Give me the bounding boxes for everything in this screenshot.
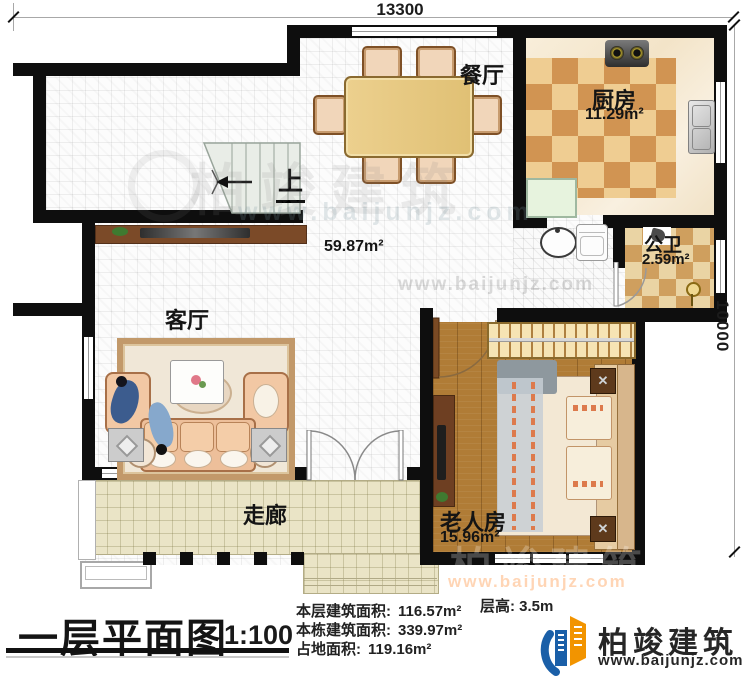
stat-value: 339.97m² (398, 622, 462, 639)
washing-machine (576, 224, 608, 261)
room-area-bedroom: 15.96m² (440, 529, 500, 547)
floor-height-label: 层高: (480, 598, 515, 615)
stat-value: 119.16m² (368, 641, 431, 658)
stove (605, 40, 649, 67)
stat-row: 本层建筑面积:116.57m² (296, 602, 462, 621)
bedroom-window-divider (530, 552, 533, 565)
porch-pillar (291, 552, 304, 565)
bedroom-tv (437, 425, 446, 480)
pillow (566, 396, 612, 440)
hall-area: 59.87m² (324, 238, 384, 256)
room-label-living: 客厅 (165, 303, 209, 335)
dining-window (352, 25, 497, 38)
outside-top-left (0, 0, 300, 63)
wall-living-left-upper (82, 210, 95, 337)
porch-pillar (254, 552, 267, 565)
sideboard-tv (140, 228, 250, 238)
floor-plan: 上 (0, 0, 750, 688)
porch-step-line (303, 578, 437, 579)
floor-drain (686, 282, 701, 297)
room-area-bath: 2.59m² (642, 251, 690, 268)
title-scale: 1:100 (224, 620, 293, 651)
area-stats: 本层建筑面积:116.57m² 本栋建筑面积:339.97m² 占地面积:119… (296, 602, 462, 659)
bedroom-window-divider (566, 552, 569, 565)
brand-website: www.baijunjz.com (598, 652, 743, 669)
bed-rail (616, 364, 635, 550)
wall-living-bottom-left (82, 467, 102, 480)
bed-post: ✕ (590, 516, 616, 542)
wash-basin (540, 227, 577, 258)
person-head (116, 376, 127, 387)
outside-right-lower (645, 322, 727, 565)
wardrobe (487, 322, 636, 359)
bath-door (600, 262, 648, 310)
stat-row: 占地面积:119.16m² (296, 640, 462, 659)
dining-chair (416, 46, 456, 80)
stairs-up-label: 上 (276, 162, 305, 203)
porch-step-line (303, 585, 437, 586)
wall-entry-right (407, 467, 420, 480)
dim-line-right (734, 25, 735, 557)
kitchen-sink (688, 100, 715, 154)
blanket-stripe (512, 382, 516, 530)
floor-drain-stem (691, 294, 693, 306)
pillow (566, 446, 612, 500)
title-underline (6, 648, 289, 653)
title-underline-thin (6, 656, 289, 658)
wall-bedroom-top (497, 308, 645, 322)
stat-row: 本栋建筑面积:339.97m² (296, 621, 462, 640)
porch-pillar (143, 552, 156, 565)
brand-logo-icon (540, 612, 594, 678)
coffee-table (170, 360, 224, 404)
kitchen-window (714, 82, 727, 163)
dim-height: 10000 (712, 300, 732, 352)
kitchen-counter (526, 178, 577, 218)
dining-chair (313, 95, 347, 135)
wall-bedroom-left (420, 308, 433, 565)
bath-window (714, 240, 727, 293)
blanket-stripe (531, 382, 535, 530)
bed-post: ✕ (590, 368, 616, 394)
bedroom-window (495, 552, 603, 565)
entry-steps (80, 561, 152, 589)
entry-porch (303, 553, 439, 594)
room-label-dining: 餐厅 (460, 58, 504, 90)
stat-label: 本层建筑面积: (296, 603, 391, 620)
wall-hall-top (13, 63, 300, 76)
kitchen-floor-checker (526, 58, 676, 198)
dim-width: 13300 (355, 0, 445, 20)
plant-icon (436, 492, 448, 502)
room-label-corridor: 走廊 (243, 498, 287, 530)
living-side-window (82, 337, 95, 399)
porch-pillar (217, 552, 230, 565)
wall-kitchen-left (513, 38, 526, 215)
room-area-kitchen: 11.29m² (585, 106, 644, 124)
dining-chair (362, 46, 402, 80)
side-table (108, 428, 144, 462)
plant-icon (112, 227, 128, 236)
side-table (251, 428, 287, 462)
side-step (78, 480, 96, 560)
stat-label: 本栋建筑面积: (296, 622, 391, 639)
wall-left-stub (13, 303, 82, 316)
person-head (156, 444, 167, 455)
stat-label: 占地面积: (296, 641, 361, 658)
wall-hall-left (33, 63, 46, 223)
entry-double-door (303, 430, 407, 482)
dining-table (344, 76, 474, 158)
porch-pillar (180, 552, 193, 565)
stat-value: 116.57m² (398, 603, 461, 620)
